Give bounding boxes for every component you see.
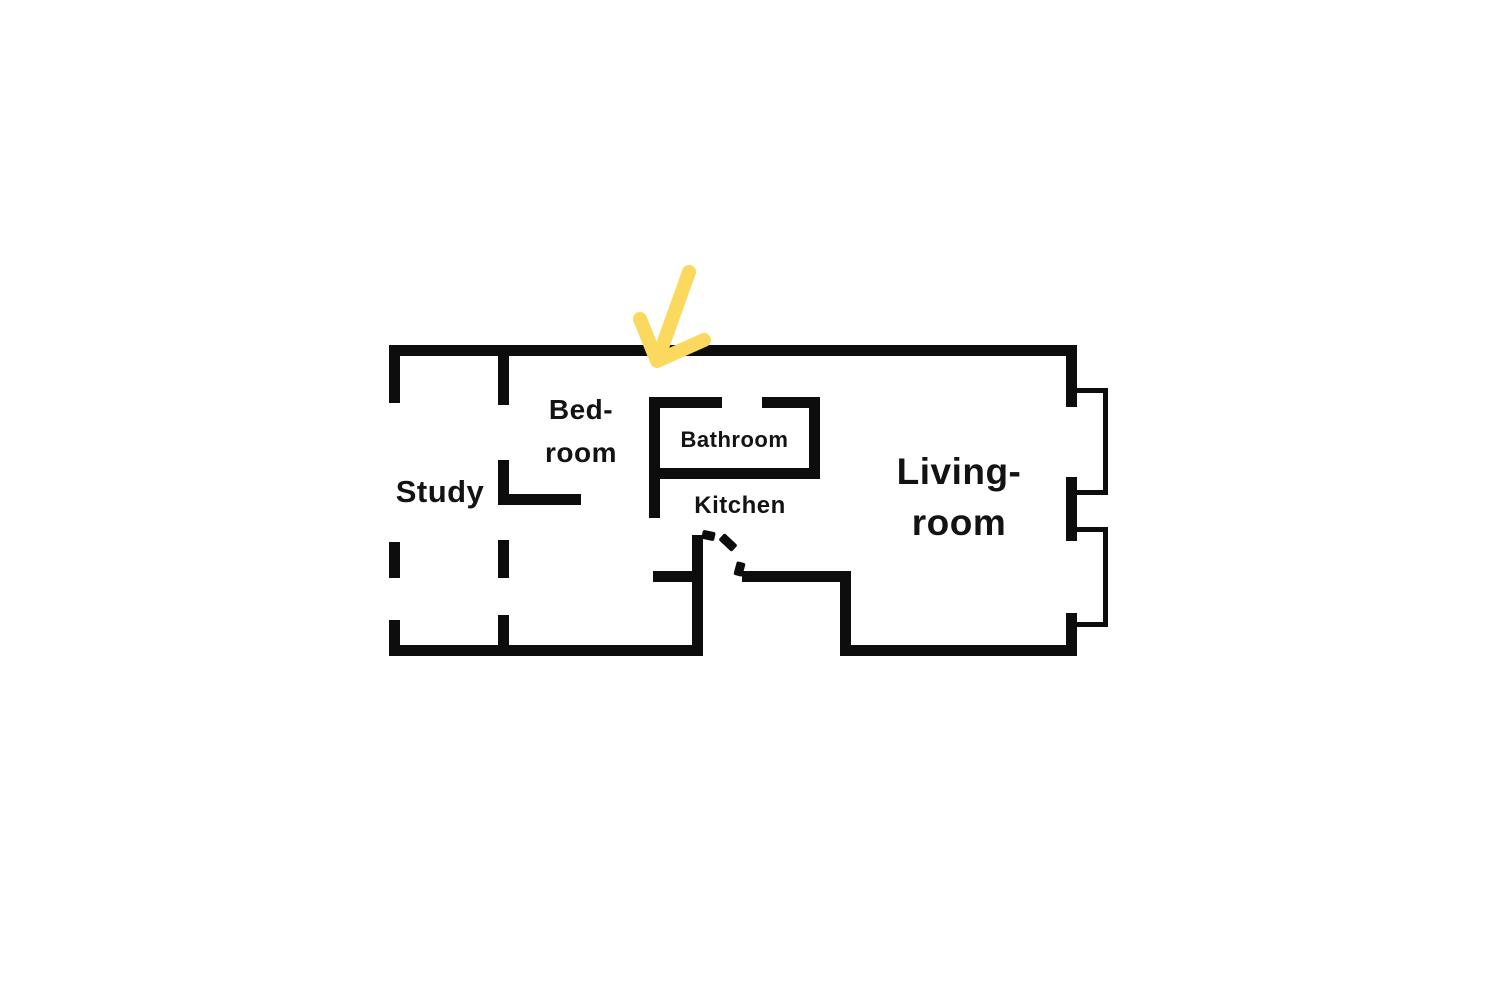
wall-left-upper (389, 356, 400, 403)
wall-entry-left-jamb (692, 535, 703, 656)
window-bay-1-outer (1103, 388, 1108, 495)
wall-bathroom-right (809, 408, 820, 479)
room-label-study-text: Study (396, 474, 485, 509)
room-label-livingroom-line1: Living- (854, 446, 1064, 497)
wall-right-upper (1066, 356, 1077, 407)
wall-entry-right (742, 571, 851, 582)
room-label-bathroom: Bathroom (660, 427, 809, 453)
wall-study-l-horizontal (509, 494, 581, 505)
wall-right-middle (1066, 477, 1077, 541)
wall-bathroom-bottom (660, 468, 809, 479)
room-label-bedroom-line2: room (506, 431, 656, 474)
room-label-bathroom-text: Bathroom (681, 427, 789, 452)
wall-bottom-right (840, 645, 1077, 656)
room-label-bedroom: Bed- room (506, 388, 656, 474)
room-label-study: Study (375, 474, 505, 510)
door-swing-dash (718, 533, 737, 552)
room-label-bedroom-line1: Bed- (506, 388, 656, 431)
wall-study-divider-lower (498, 615, 509, 645)
wall-left-window-dash (389, 542, 400, 578)
wall-top (389, 345, 1077, 356)
window-bay-2-outer (1103, 527, 1108, 627)
wall-bottom-left (389, 645, 703, 656)
wall-entry-stub (653, 571, 692, 582)
room-label-kitchen-text: Kitchen (694, 492, 786, 519)
window-bay-2-bottom (1077, 622, 1108, 627)
room-label-kitchen: Kitchen (660, 492, 820, 520)
wall-study-divider-dash (498, 540, 509, 578)
room-label-livingroom: Living- room (854, 446, 1064, 548)
window-bay-1-bottom (1077, 490, 1108, 495)
wall-bathroom-top-left (660, 397, 722, 408)
entrance-arrow-shaft (660, 272, 689, 353)
floor-plan: Study Bed- room Bathroom Kitchen Living-… (0, 0, 1500, 1000)
wall-bathroom-top-right (762, 397, 820, 408)
wall-livingroom-left (840, 571, 851, 656)
room-label-livingroom-line2: room (854, 497, 1064, 548)
wall-right-lower (1066, 613, 1077, 656)
door-swing-dash (701, 530, 716, 542)
